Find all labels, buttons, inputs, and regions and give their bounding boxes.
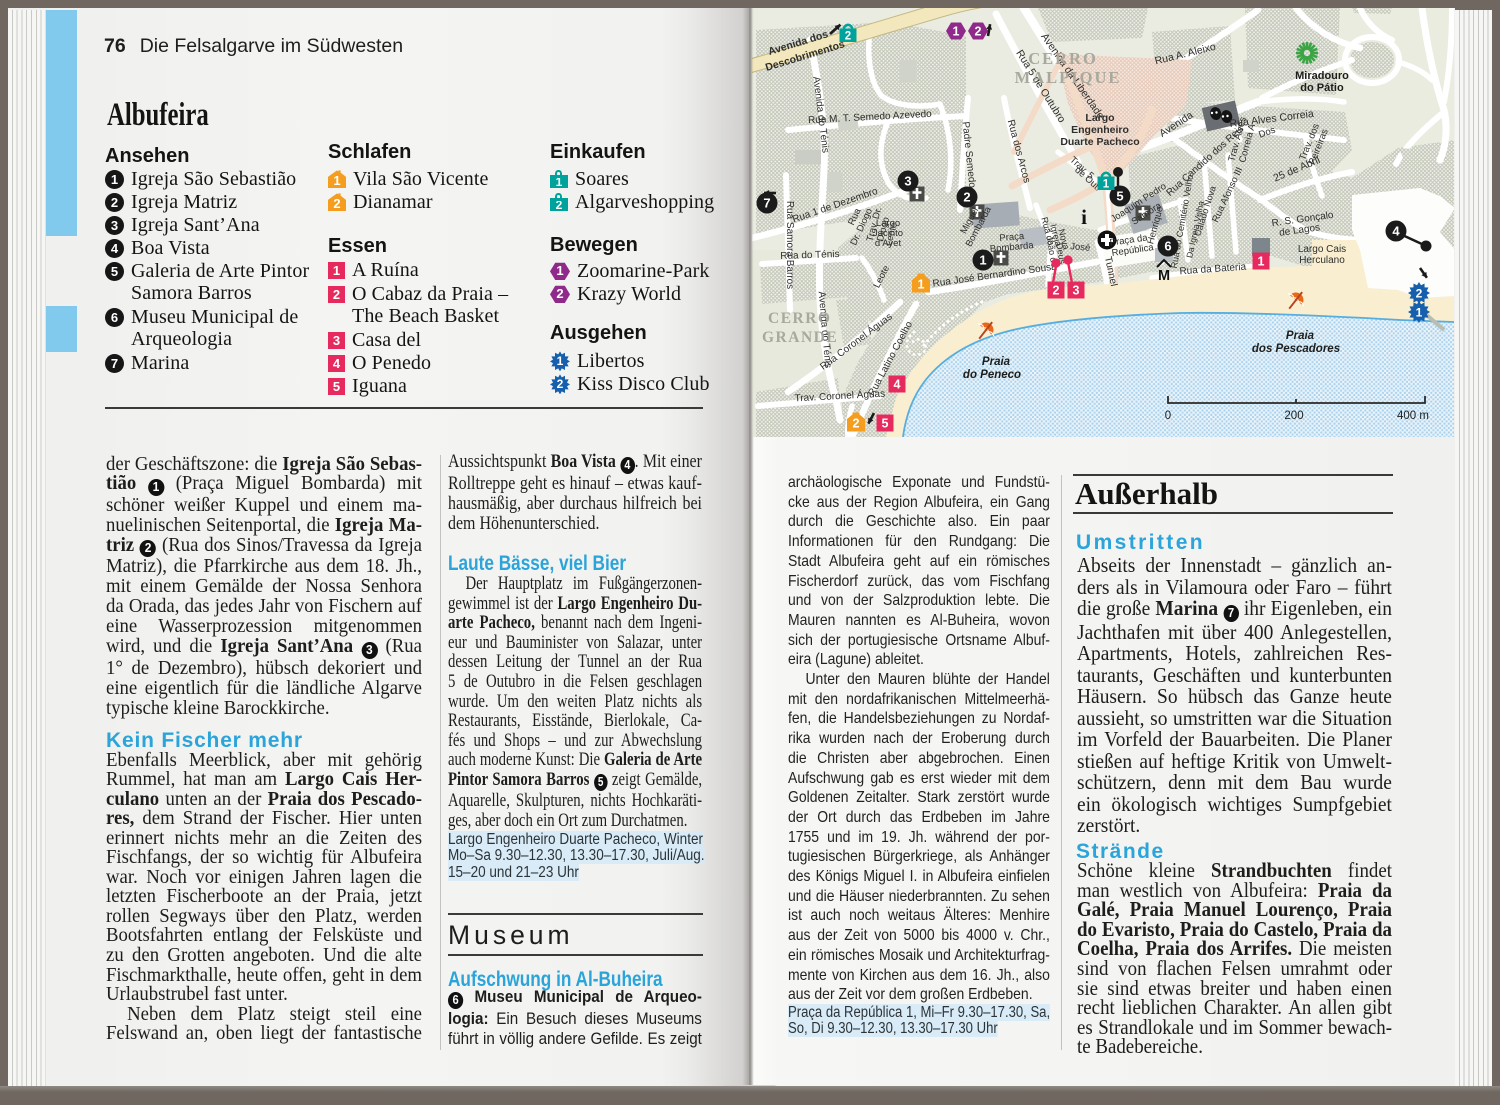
svg-text:Engenheiro: Engenheiro <box>1071 124 1129 136</box>
svg-text:CERRO: CERRO <box>1028 49 1098 68</box>
svg-text:6: 6 <box>1164 239 1171 254</box>
svg-text:7: 7 <box>763 196 770 211</box>
svg-text:José: José <box>1070 241 1091 254</box>
svg-text:dos Pescadores: dos Pescadores <box>1252 343 1340 355</box>
svg-text:do Peneco: do Peneco <box>963 369 1021 381</box>
svg-text:1: 1 <box>953 25 960 39</box>
svg-text:Largo: Largo <box>1085 112 1114 124</box>
svg-text:2: 2 <box>1053 284 1060 298</box>
svg-text:MALPIQUE: MALPIQUE <box>1015 68 1122 87</box>
svg-text:Praia: Praia <box>1286 330 1315 342</box>
svg-text:4: 4 <box>894 378 901 392</box>
svg-text:0: 0 <box>1165 410 1171 422</box>
svg-text:Duarte Pacheco: Duarte Pacheco <box>1060 136 1139 148</box>
svg-text:400 m: 400 m <box>1397 410 1429 422</box>
svg-text:1: 1 <box>979 253 986 268</box>
svg-text:2: 2 <box>845 31 851 43</box>
svg-text:2: 2 <box>963 190 970 205</box>
svg-text:Largo Cais: Largo Cais <box>1298 244 1346 255</box>
svg-text:2: 2 <box>1416 286 1423 300</box>
svg-text:2: 2 <box>853 417 860 431</box>
svg-text:5: 5 <box>1116 189 1123 204</box>
svg-text:1: 1 <box>1103 179 1110 191</box>
svg-text:Herculano: Herculano <box>1299 255 1345 266</box>
svg-text:1: 1 <box>1416 305 1423 319</box>
svg-text:Rua do Ténis: Rua do Ténis <box>780 249 840 262</box>
svg-text:Miradouro: Miradouro <box>1295 70 1349 82</box>
svg-text:M: M <box>1158 268 1170 284</box>
svg-text:5: 5 <box>882 417 889 431</box>
svg-text:1: 1 <box>1258 255 1265 269</box>
svg-text:3: 3 <box>904 174 911 189</box>
svg-text:Praia: Praia <box>982 356 1011 368</box>
svg-text:i: i <box>1081 205 1087 229</box>
svg-text:3: 3 <box>1073 284 1080 298</box>
svg-text:do Pátio: do Pátio <box>1300 82 1344 94</box>
svg-text:2: 2 <box>975 25 982 39</box>
svg-text:200: 200 <box>1284 410 1303 422</box>
svg-text:4: 4 <box>1392 224 1400 239</box>
svg-text:1: 1 <box>918 278 925 292</box>
svg-text:CERRO: CERRO <box>768 310 831 327</box>
svg-text:GRANDE: GRANDE <box>762 329 838 346</box>
svg-text:d’Ayet: d’Ayet <box>875 238 902 249</box>
